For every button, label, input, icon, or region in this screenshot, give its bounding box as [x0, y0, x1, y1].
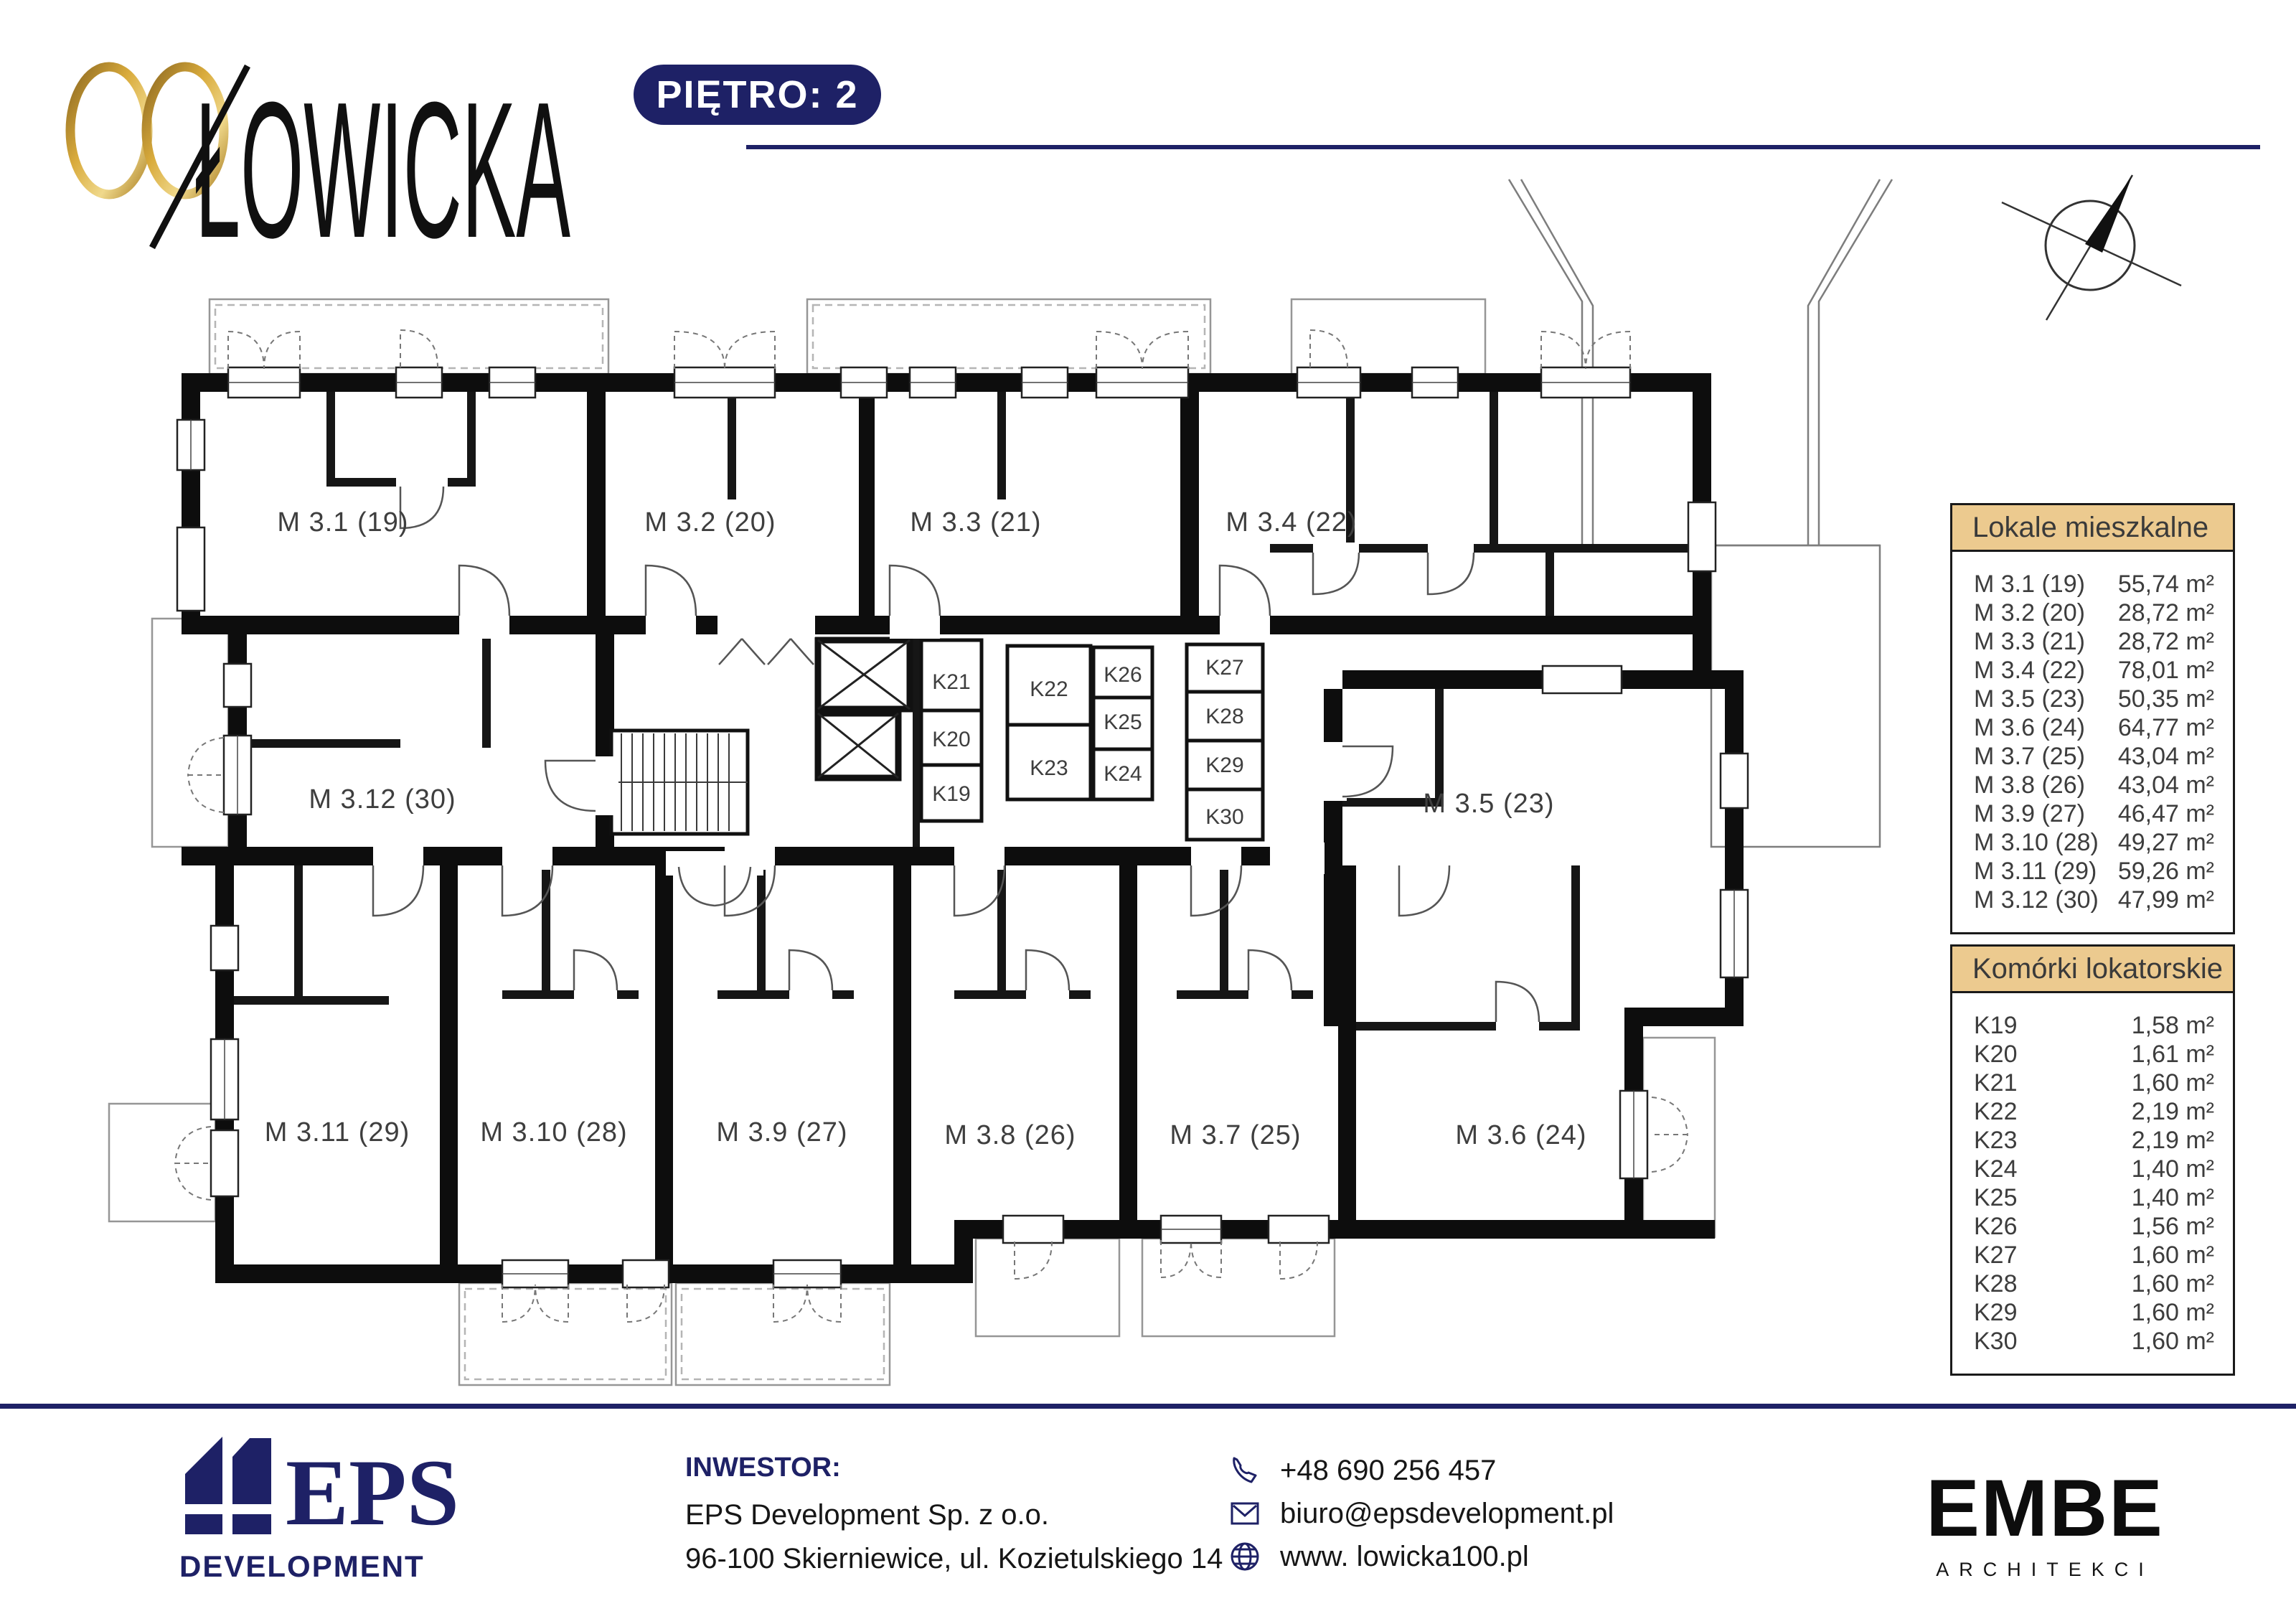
apartment-label: M 3.7 (25) [1170, 1120, 1301, 1150]
apartment-label: M 3.10 (28) [480, 1117, 627, 1147]
legend-row: K241,40 m² [1974, 1155, 2214, 1184]
investor-address: 96-100 Skierniewice, ul. Kozietulskiego … [685, 1543, 1223, 1575]
legend-row: K271,60 m² [1974, 1242, 2214, 1270]
legend-row: K281,60 m² [1974, 1270, 2214, 1299]
legend-row: M 3.8 (26)43,04 m² [1974, 771, 2214, 800]
legend-row: M 3.12 (30)47,99 m² [1974, 886, 2214, 915]
legend-storage-title: Komórki lokatorskie [1952, 947, 2233, 993]
storage-label: K27 [1205, 656, 1243, 680]
legend-row: K211,60 m² [1974, 1069, 2214, 1098]
eps-logo-name: EPS [286, 1440, 459, 1545]
storage-label: K28 [1205, 705, 1243, 728]
legend-storage-panel: Komórki lokatorskie K191,58 m² K201,61 m… [1950, 944, 2235, 1376]
apartment-label: M 3.1 (19) [277, 507, 408, 538]
elevator-shafts [818, 640, 910, 778]
legend-row: K291,60 m² [1974, 1299, 2214, 1328]
storage-label: K24 [1104, 762, 1142, 786]
apartment-label: M 3.12 (30) [309, 784, 456, 815]
embe-logo-name: EMBE [1894, 1468, 2196, 1549]
investor-label: INWESTOR: [685, 1452, 1223, 1483]
apartment-label: M 3.8 (26) [944, 1120, 1076, 1150]
storage-label: K30 [1205, 805, 1243, 829]
investor-block: INWESTOR: EPS Development Sp. z o.o. 96-… [685, 1452, 1223, 1575]
contact-website-row: www. lowicka100.pl [1228, 1540, 1614, 1573]
legend-row: K232,19 m² [1974, 1127, 2214, 1155]
legend-row: M 3.9 (27)46,47 m² [1974, 800, 2214, 829]
website-url: www. lowicka100.pl [1280, 1541, 1529, 1573]
apartment-label: M 3.3 (21) [910, 507, 1041, 538]
footer-divider [0, 1404, 2296, 1409]
eps-building-icon [185, 1437, 271, 1534]
envelope-icon [1228, 1497, 1261, 1530]
storage-label: K21 [932, 670, 970, 694]
investor-name: EPS Development Sp. z o.o. [685, 1499, 1223, 1531]
legend-row: K261,56 m² [1974, 1213, 2214, 1242]
storage-label: K23 [1030, 756, 1068, 780]
legend-row: M 3.3 (21)28,72 m² [1974, 628, 2214, 657]
legend-row: M 3.4 (22)78,01 m² [1974, 657, 2214, 685]
globe-icon [1228, 1540, 1261, 1573]
legend-row: K191,58 m² [1974, 1012, 2214, 1041]
legend-row: M 3.5 (23)50,35 m² [1974, 685, 2214, 714]
embe-logo: EMBE ARCHITEKCI [1894, 1468, 2196, 1581]
embe-logo-sub: ARCHITEKCI [1894, 1559, 2196, 1581]
apartment-labels: M 3.1 (19) M 3.2 (20) M 3.3 (21) M 3.4 (… [265, 507, 1587, 1150]
legend-apartments-panel: Lokale mieszkalne M 3.1 (19)55,74 m² M 3… [1950, 503, 2235, 934]
compass-icon [2002, 175, 2181, 320]
eps-logo-sub: DEVELOPMENT [179, 1549, 452, 1584]
storage-label: K29 [1205, 754, 1243, 777]
legend-row: K301,60 m² [1974, 1328, 2214, 1356]
contact-email-row: biuro@epsdevelopment.pl [1228, 1497, 1614, 1530]
stairs [611, 731, 748, 834]
email-address: biuro@epsdevelopment.pl [1280, 1498, 1614, 1530]
legend-apartments-title: Lokale mieszkalne [1952, 505, 2233, 552]
apartment-label: M 3.11 (29) [265, 1117, 410, 1147]
eps-logo-graphic: EPS [179, 1432, 452, 1540]
legend-row: K222,19 m² [1974, 1098, 2214, 1127]
apartment-label: M 3.6 (24) [1455, 1120, 1586, 1150]
eps-logo: EPS DEVELOPMENT [179, 1432, 452, 1584]
legend-row: K251,40 m² [1974, 1184, 2214, 1213]
legend-row: K201,61 m² [1974, 1041, 2214, 1069]
storage-label: K22 [1030, 677, 1068, 701]
storage-label: K19 [932, 782, 970, 806]
apartment-label: M 3.5 (23) [1423, 789, 1554, 819]
legend-row: M 3.7 (25)43,04 m² [1974, 743, 2214, 771]
storage-label: K25 [1104, 710, 1142, 734]
storage-label: K20 [932, 728, 970, 751]
floor-plan-sheet: ŁOWICKA 100 PIĘTRO: 2 [0, 0, 2296, 1624]
legend-row: M 3.10 (28)49,27 m² [1974, 829, 2214, 858]
contact-phone-row: +48 690 256 457 [1228, 1454, 1614, 1487]
apartment-label: M 3.4 (22) [1225, 507, 1357, 538]
legend-row: M 3.11 (29)59,26 m² [1974, 858, 2214, 886]
phone-icon [1228, 1454, 1261, 1487]
phone-number: +48 690 256 457 [1280, 1455, 1496, 1487]
legend-row: M 3.6 (24)64,77 m² [1974, 714, 2214, 743]
legend-row: M 3.1 (19)55,74 m² [1974, 571, 2214, 599]
legend-row: M 3.2 (20)28,72 m² [1974, 599, 2214, 628]
contact-block: +48 690 256 457 biuro@epsdevelopment.pl … [1228, 1454, 1614, 1573]
storage-label: K26 [1104, 663, 1142, 687]
apartment-label: M 3.2 (20) [644, 507, 776, 538]
apartment-label: M 3.9 (27) [716, 1117, 847, 1147]
